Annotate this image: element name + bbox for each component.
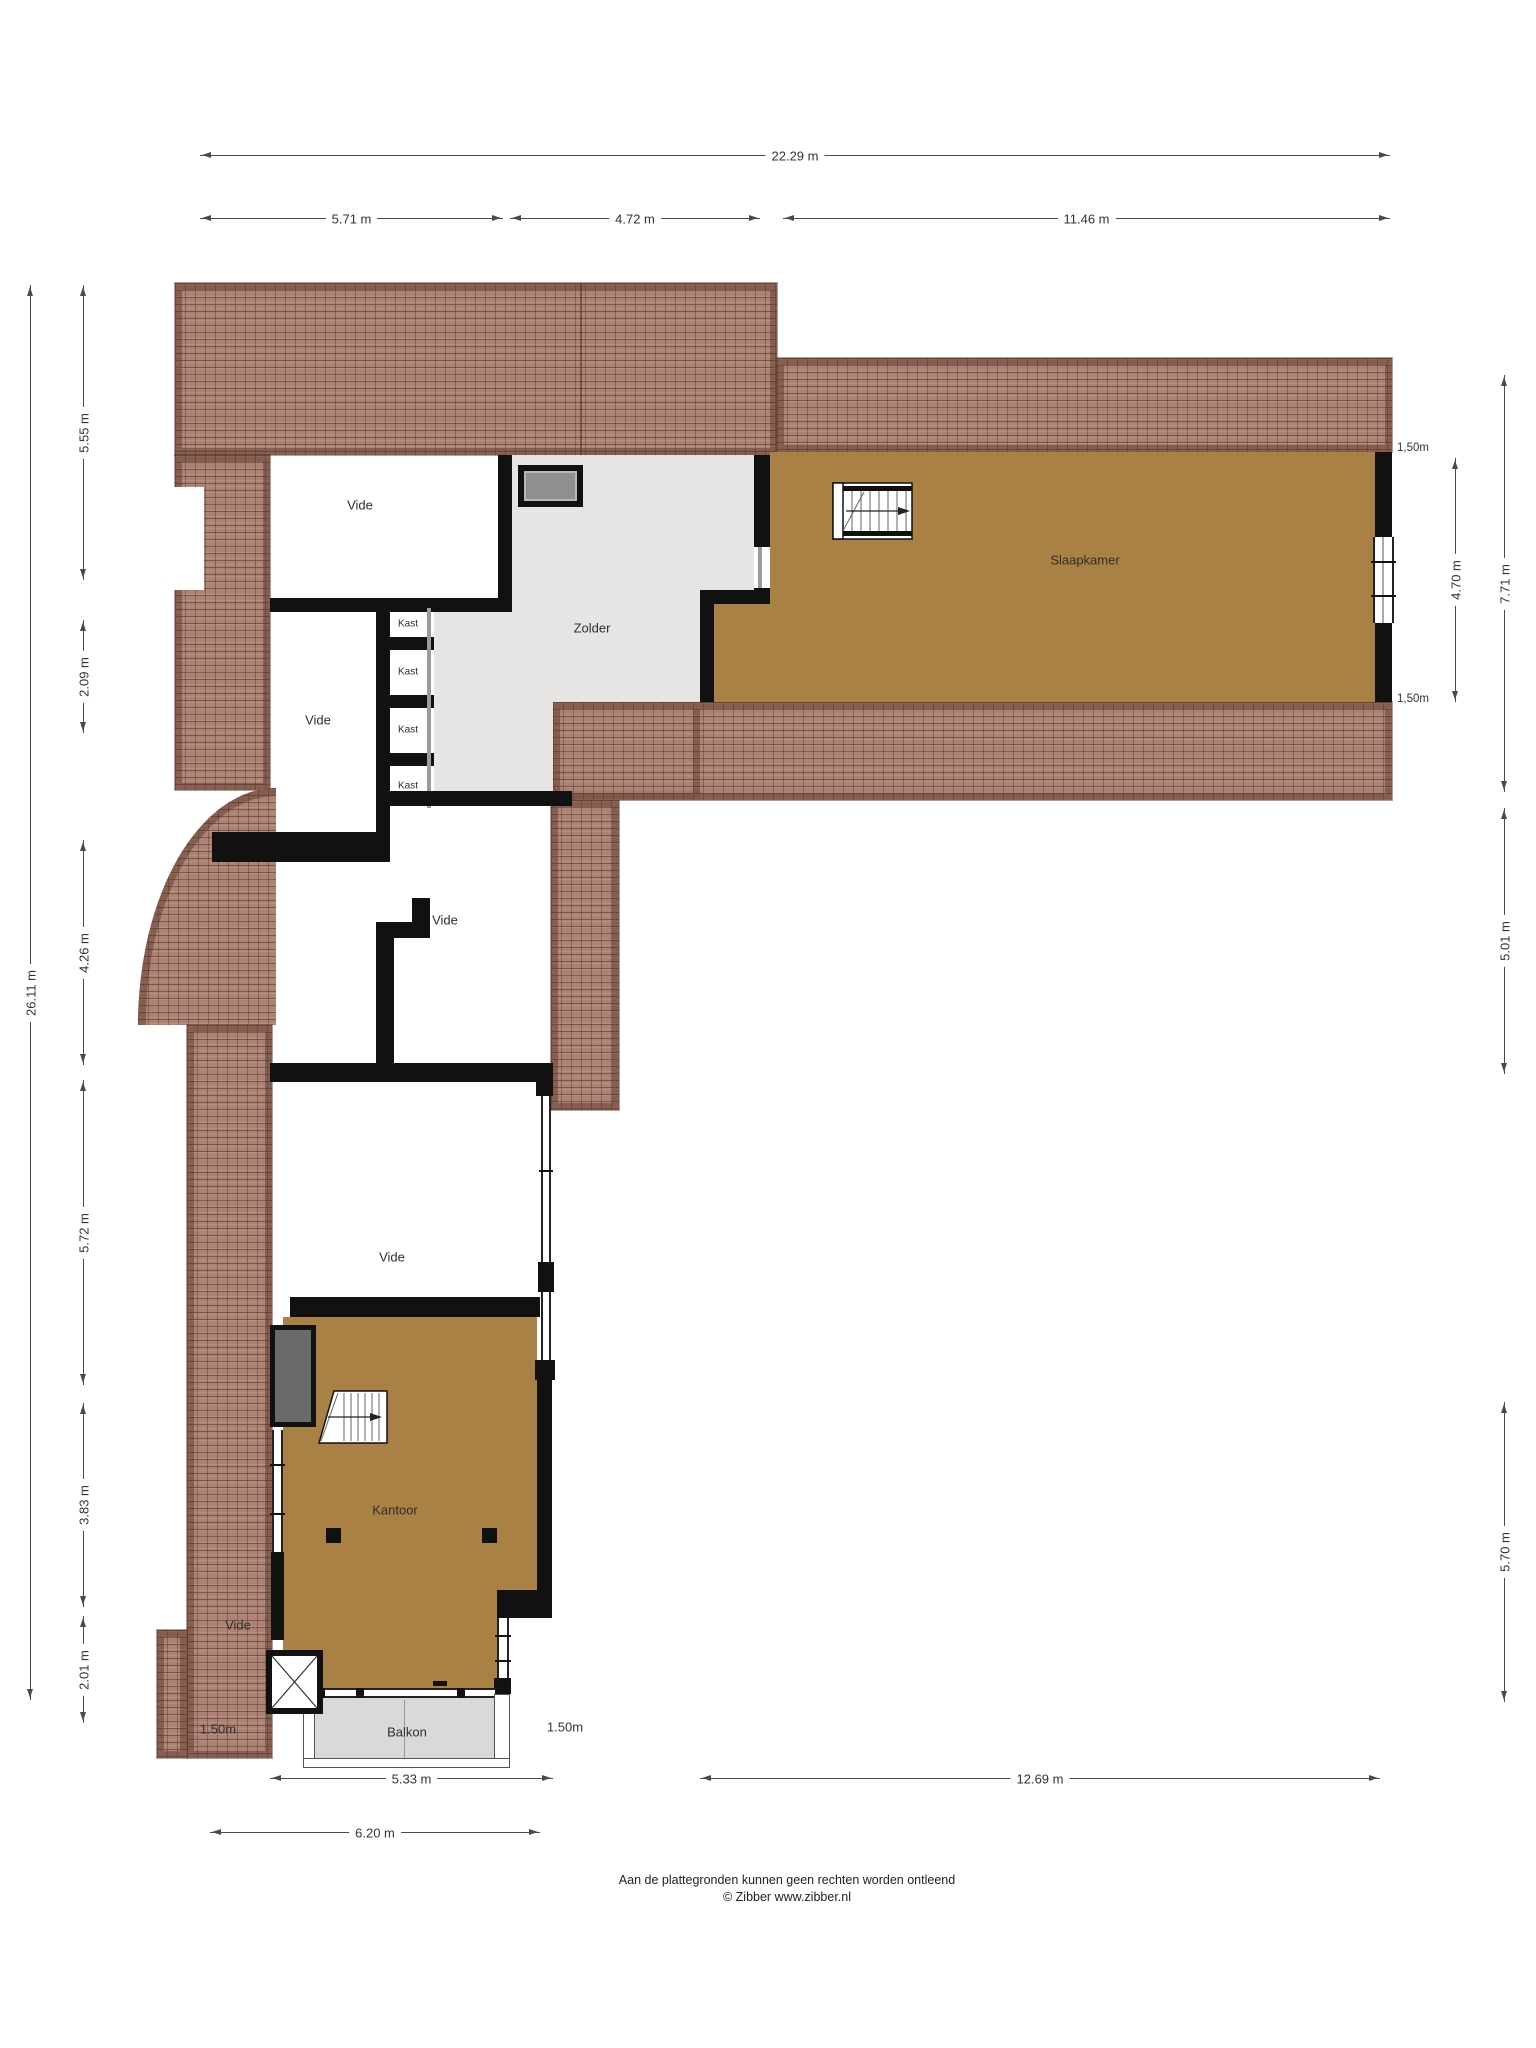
room-label-kantoor: Kantoor	[372, 1503, 418, 1518]
room-label-vide3: Vide	[432, 913, 458, 928]
roof-left-strip-lower	[187, 1025, 272, 1758]
dimension-bottom-balcony: 5.33 m	[270, 1778, 553, 1779]
wall-kantoor-top	[290, 1297, 540, 1317]
floor-mark	[433, 1681, 447, 1686]
label-balcony-right: 1.50m	[547, 1720, 583, 1735]
wall-vide1-bottom	[270, 598, 512, 612]
room-label-slaapkamer: Slaapkamer	[1050, 553, 1119, 568]
wall-kantoor-right	[537, 1368, 552, 1592]
room-label-kast4: Kast	[398, 781, 418, 792]
dimension-right-mid: 5.01 m	[1504, 808, 1505, 1074]
kantoor-column-right	[482, 1528, 497, 1543]
dimension-left-4: 5.72 m	[83, 1080, 84, 1385]
slaapkamer-window	[1373, 537, 1394, 623]
wall-kantoor-left	[271, 1552, 284, 1640]
zolder-slaapkamer-door	[758, 547, 762, 588]
footer-line1: Aan de plattegronden kunnen geen rechten…	[387, 1872, 1187, 1889]
room-label-kast3: Kast	[398, 725, 418, 736]
wall-zolder-slaapkamer-lower	[700, 604, 714, 702]
label-balcony-left: 1.50m	[200, 1722, 236, 1737]
dimension-right-inner: 4.70 m	[1455, 458, 1456, 702]
room-label-kast1: Kast	[398, 619, 418, 630]
kast-sliding-doors	[427, 608, 431, 808]
room-label-vide4: Vide	[225, 1618, 251, 1633]
room-label-vide1: Vide	[347, 498, 373, 513]
wall-vide3-window-segment	[538, 1262, 554, 1292]
balkon-door-nub-3	[457, 1688, 465, 1698]
room-label-balkon: Balkon	[387, 1725, 427, 1740]
wall-zolder-slaapkamer-upper	[754, 455, 770, 547]
slaapkamer-floor-step	[714, 604, 770, 702]
roof-arch	[138, 788, 276, 1025]
dimension-top-left: 5.71 m	[200, 218, 503, 219]
balkon-rail-bottom	[303, 1758, 510, 1768]
label-right-roof-bottom: 1,50m	[1397, 693, 1429, 705]
slaapkamer-stairs-icon	[832, 482, 913, 540]
kantoor-right-window	[497, 1618, 509, 1680]
wall-zolder-slaapkamer-horiz	[700, 590, 770, 604]
balkon-rail-right	[494, 1694, 510, 1768]
roof-right-wing-bottom-overlay	[553, 702, 700, 800]
dimension-top-mid: 4.72 m	[510, 218, 760, 219]
room-label-vide2: Vide	[305, 713, 331, 728]
room-label-vide3b: Vide	[379, 1250, 405, 1265]
wall-vide3-bottom	[270, 1063, 553, 1082]
wall-vide2-bottom	[212, 832, 390, 862]
dimension-right-lower: 5.70 m	[1504, 1402, 1505, 1702]
label-right-roof-top: 1,50m	[1397, 442, 1429, 454]
dimension-right-wing: 7.71 m	[1504, 375, 1505, 792]
dimension-left-3: 4.26 m	[83, 840, 84, 1065]
dimension-bottom-total: 6.20 m	[210, 1832, 540, 1833]
wall-kantoor-right-step	[497, 1590, 552, 1618]
wall-slaapkamer-right-top	[1375, 452, 1392, 537]
dimension-top-right: 11.46 m	[783, 218, 1390, 219]
kantoor-left-window	[272, 1430, 283, 1552]
wall-vide3-vert	[376, 922, 394, 1082]
roof-left-strip-step	[157, 1630, 187, 1758]
wall-vide3-nub	[412, 898, 430, 922]
wall-kantoor-right-nub	[494, 1678, 511, 1694]
dimension-left-total: 26.11 m	[30, 285, 31, 1700]
roof-window	[518, 465, 583, 507]
wall-slaapkamer-right-bottom	[1375, 623, 1392, 702]
roof-middle-strip	[551, 800, 619, 1110]
dimension-top-total: 22.29 m	[200, 155, 1390, 156]
dimension-bottom-wing: 12.69 m	[700, 1778, 1380, 1779]
chimney-shaft	[270, 1325, 316, 1427]
roof-right-wing-top	[777, 358, 1392, 452]
wall-zolder-bottom	[376, 791, 572, 806]
balkon-door-arrow-icon: →	[354, 1686, 367, 1701]
roof-edge-notch	[168, 487, 204, 590]
wall-vide1-right	[498, 455, 512, 605]
room-label-zolder: Zolder	[574, 621, 611, 636]
vide3-right-window	[541, 1096, 551, 1362]
footer-disclaimer: Aan de plattegronden kunnen geen rechten…	[387, 1872, 1187, 1906]
kantoor-stairs-icon	[318, 1390, 388, 1444]
kantoor-column-left	[326, 1528, 341, 1543]
elevator-icon	[266, 1650, 323, 1714]
dimension-left-1: 5.55 m	[83, 285, 84, 580]
kantoor-floor-upper	[283, 1317, 537, 1592]
roof-seam	[580, 283, 582, 455]
dimension-left-5: 3.83 m	[83, 1403, 84, 1607]
room-label-kast2: Kast	[398, 667, 418, 678]
dimension-left-2: 2.09 m	[83, 620, 84, 733]
footer-line2: © Zibber www.zibber.nl	[387, 1889, 1187, 1906]
wall-vide3-corner	[536, 1082, 553, 1096]
roof-top-left-block	[175, 283, 777, 455]
dimension-left-6: 2.01 m	[83, 1616, 84, 1723]
balkon-door-row	[315, 1688, 495, 1698]
